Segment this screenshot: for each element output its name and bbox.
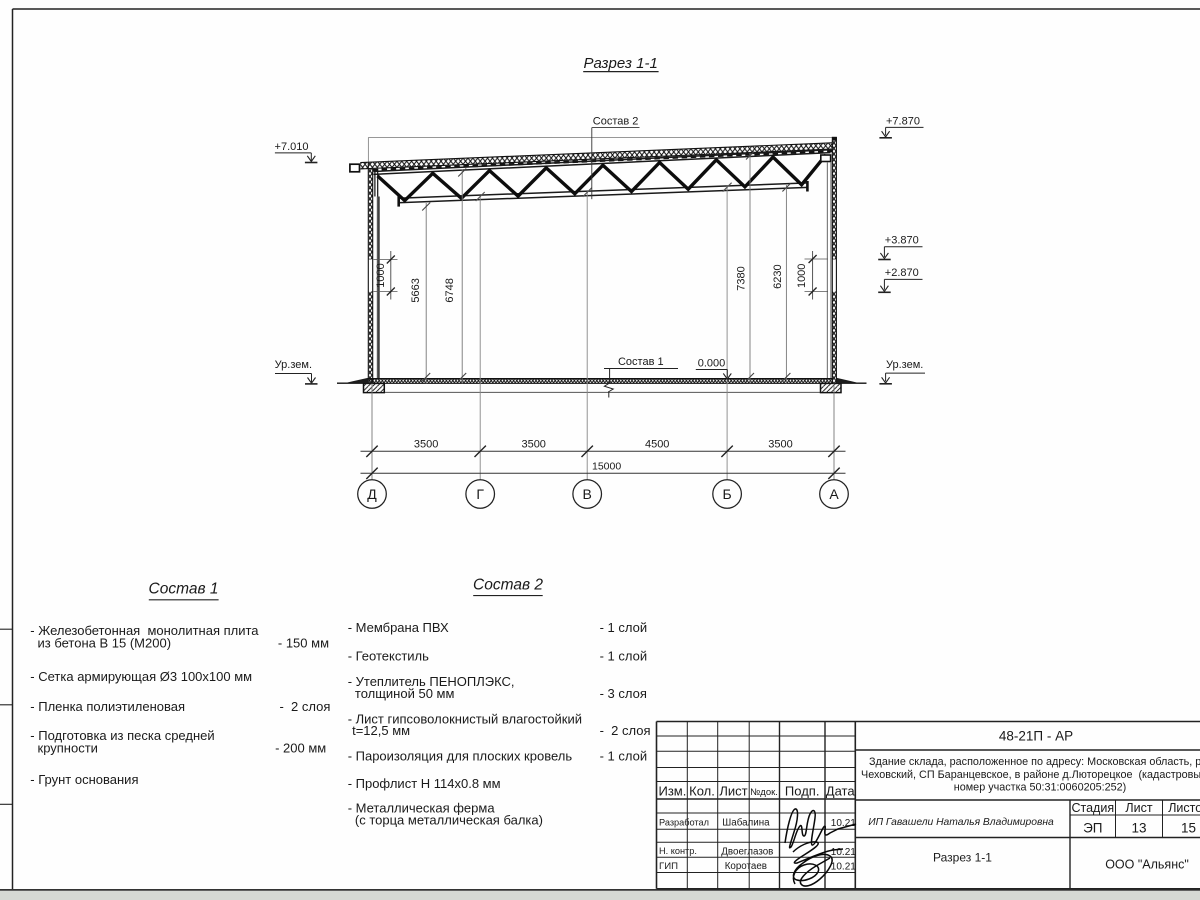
svg-text:- Грунт основания: - Грунт основания: [30, 772, 138, 787]
svg-text:15000: 15000: [592, 461, 621, 473]
svg-text:В: В: [583, 486, 592, 502]
svg-text:- 3 слоя: - 3 слоя: [600, 686, 647, 701]
svg-text:Разрез 1-1: Разрез 1-1: [584, 55, 658, 72]
svg-text:15: 15: [1181, 821, 1196, 836]
svg-text:Листов: Листов: [1168, 801, 1200, 815]
svg-text:Лист: Лист: [1125, 801, 1152, 815]
svg-text:(с торца металлическая балка): (с торца металлическая балка): [355, 813, 543, 828]
svg-text:t=12,5 мм: t=12,5 мм: [352, 723, 410, 738]
svg-text:ИП Гавашели Наталья Владимиров: ИП Гавашели Наталья Владимировна: [868, 817, 1054, 828]
svg-text:Состав 1: Состав 1: [618, 356, 664, 368]
svg-text:48-21П - АР: 48-21П - АР: [999, 729, 1073, 744]
svg-text:- Пленка полиэтиленовая: - Пленка полиэтиленовая: [30, 699, 185, 714]
svg-text:Б: Б: [723, 486, 732, 502]
svg-text:Состав 2: Состав 2: [593, 116, 639, 128]
svg-text:+2.870: +2.870: [885, 267, 919, 279]
svg-text:ГИП: ГИП: [659, 861, 678, 872]
svg-text:0.000: 0.000: [698, 358, 726, 370]
svg-text:+3.870: +3.870: [885, 234, 919, 246]
svg-text:Кол.: Кол.: [689, 784, 715, 799]
svg-text:Разработал: Разработал: [659, 818, 709, 828]
svg-text:- 1 слой: - 1 слой: [600, 648, 648, 663]
svg-text:А: А: [829, 486, 839, 502]
svg-text:Состав 1: Состав 1: [149, 580, 219, 597]
svg-text:толщиной 50 мм: толщиной 50 мм: [355, 686, 455, 701]
svg-text:13: 13: [1131, 821, 1146, 836]
svg-text:Состав 2: Состав 2: [473, 576, 543, 593]
svg-text:Шабалина: Шабалина: [722, 818, 770, 829]
svg-text:- Профлист Н 114х0.8 мм: - Профлист Н 114х0.8 мм: [348, 776, 501, 791]
svg-text:Лист: Лист: [719, 784, 747, 799]
svg-text:Г: Г: [476, 486, 484, 502]
svg-text:- 1 слой: - 1 слой: [600, 620, 648, 635]
svg-text:6748: 6748: [444, 278, 456, 302]
svg-text:- 2 слоя: - 2 слоя: [280, 699, 331, 714]
svg-text:- 2 слоя: - 2 слоя: [600, 723, 651, 738]
svg-text:- 200 мм: - 200 мм: [275, 740, 326, 755]
svg-text:крупности: крупности: [38, 740, 98, 755]
svg-text:- 150 мм: - 150 мм: [278, 635, 329, 650]
svg-text:6230: 6230: [772, 264, 784, 288]
svg-text:3500: 3500: [768, 439, 792, 451]
svg-text:№док.: №док.: [750, 787, 778, 798]
svg-text:1000: 1000: [375, 263, 387, 287]
svg-text:Коротаев: Коротаев: [725, 861, 767, 872]
svg-text:+7.010: +7.010: [275, 141, 309, 153]
svg-text:1000: 1000: [796, 264, 808, 288]
svg-text:из бетона В 15 (М200): из бетона В 15 (М200): [38, 635, 172, 650]
svg-text:10.21: 10.21: [831, 847, 856, 858]
svg-text:Двоеглазов: Двоеглазов: [721, 847, 773, 858]
svg-text:Чеховский, СП Баранцевское, в: Чеховский, СП Баранцевское, в районе д.Л…: [861, 769, 1200, 781]
svg-text:- Геотекстиль: - Геотекстиль: [348, 648, 429, 663]
svg-text:7380: 7380: [736, 266, 748, 290]
svg-text:Стадия: Стадия: [1071, 801, 1114, 815]
svg-text:+7.870: +7.870: [886, 115, 920, 127]
svg-text:ООО "Альянс": ООО "Альянс": [1105, 858, 1189, 872]
svg-text:5663: 5663: [410, 278, 422, 302]
svg-text:- Мембрана ПВХ: - Мембрана ПВХ: [348, 620, 449, 635]
svg-text:Подп.: Подп.: [785, 784, 820, 799]
svg-text:- Сетка армирующая Ø3 100х100: - Сетка армирующая Ø3 100х100 мм: [30, 669, 252, 684]
svg-text:Ур.зем.: Ур.зем.: [886, 359, 923, 371]
svg-text:10.21: 10.21: [831, 862, 856, 873]
svg-text:ЭП: ЭП: [1083, 821, 1102, 836]
svg-text:3500: 3500: [521, 439, 545, 451]
svg-text:Дата: Дата: [826, 784, 856, 799]
svg-text:Разрез 1-1: Разрез 1-1: [933, 851, 992, 865]
svg-text:- 1 слой: - 1 слой: [600, 748, 648, 763]
svg-text:3500: 3500: [414, 439, 438, 451]
svg-text:Ур.зем.: Ур.зем.: [275, 359, 312, 371]
svg-text:Здание склада, расположенное п: Здание склада, расположенное по адресу: …: [869, 756, 1200, 768]
svg-text:номер участка 50:31:0060205:25: номер участка 50:31:0060205:252): [954, 782, 1126, 794]
svg-text:Н. контр.: Н. контр.: [659, 846, 697, 856]
svg-text:- Пароизоляция для плоских кро: - Пароизоляция для плоских кровель: [348, 748, 573, 763]
svg-text:Д: Д: [367, 486, 377, 502]
svg-text:4500: 4500: [645, 439, 669, 451]
svg-text:Изм.: Изм.: [659, 784, 687, 799]
